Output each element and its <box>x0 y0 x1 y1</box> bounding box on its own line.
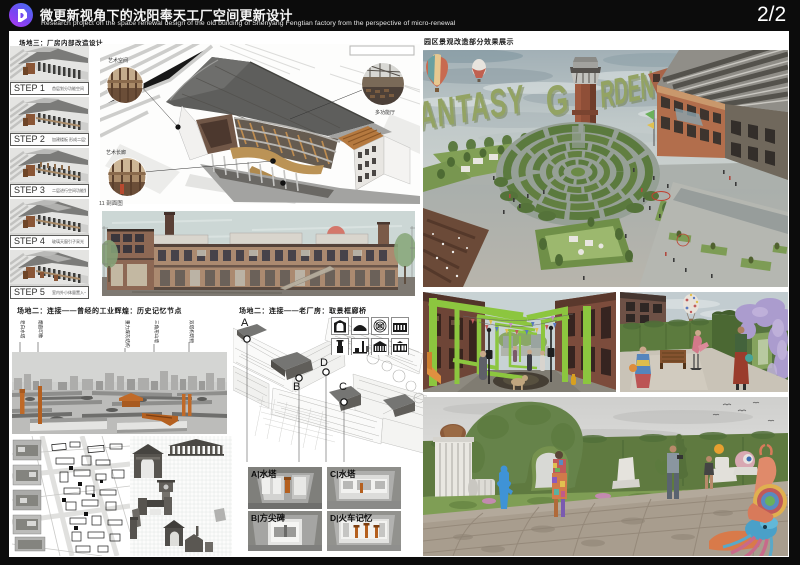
svg-text:A: A <box>241 317 249 329</box>
svg-text:多功能厅: 多功能厅 <box>375 109 395 116</box>
svg-text:重力煤灰结构: 重力煤灰结构 <box>124 320 131 348</box>
svg-text:烟囱印象: 烟囱印象 <box>37 320 44 339</box>
svg-text:老白水塔: 老白水塔 <box>19 320 26 339</box>
svg-text:D: D <box>320 357 328 369</box>
svg-text:双塔构筑物: 双塔构筑物 <box>188 320 195 343</box>
svg-text:C: C <box>339 381 347 393</box>
svg-text:艺术长廊: 艺术长廊 <box>106 149 126 156</box>
svg-text:三角形山墙: 三角形山墙 <box>153 320 160 343</box>
svg-text:艺术空间: 艺术空间 <box>108 57 128 64</box>
svg-text:G: G <box>544 74 570 125</box>
